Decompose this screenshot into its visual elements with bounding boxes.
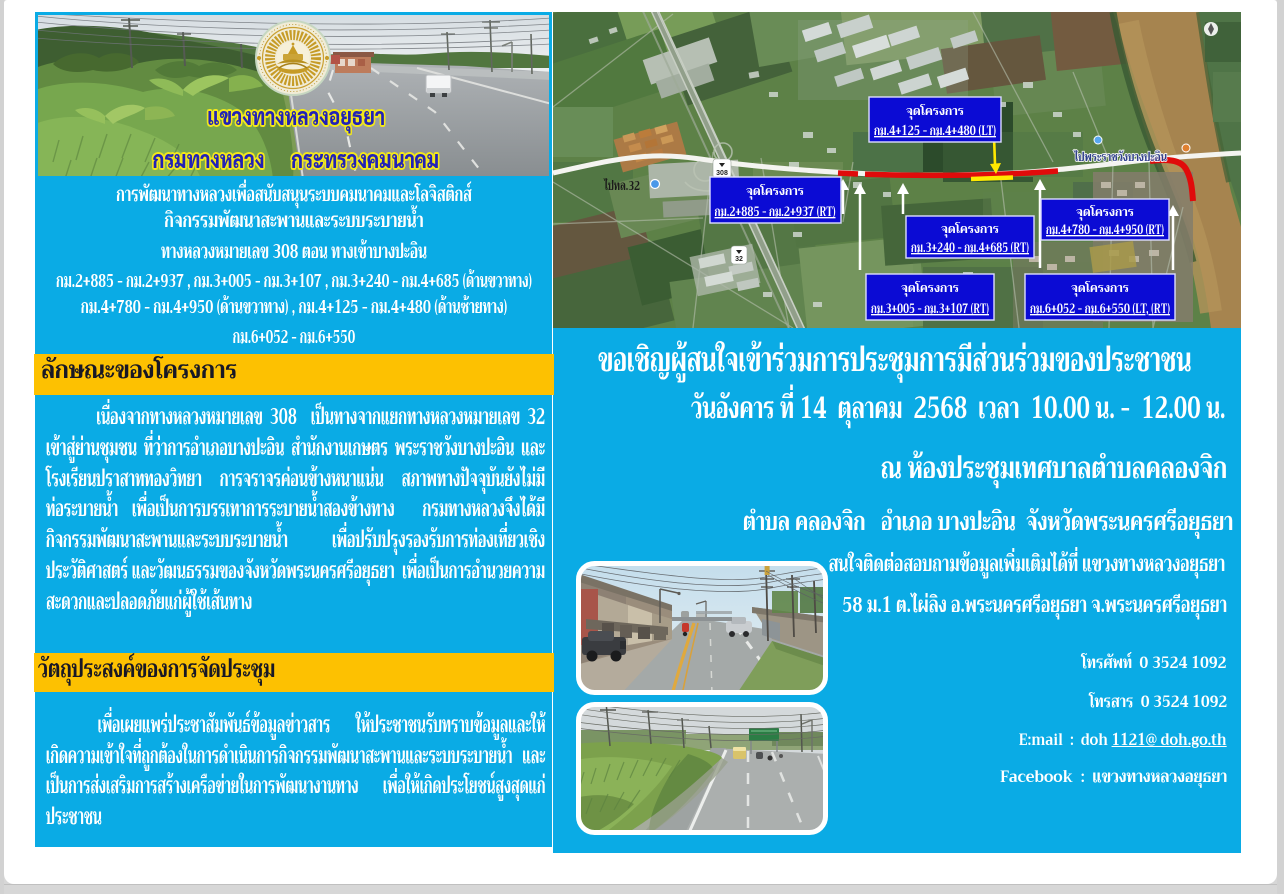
svg-text:ไปพระราชวังบางปะอิน: ไปพระราชวังบางปะอิน (1073, 148, 1167, 168)
svg-text:จุดโครงการ: จุดโครงการ (746, 180, 804, 202)
svg-text:จุดโครงการ: จุดโครงการ (1071, 277, 1129, 299)
svg-text:กม.3+005 - กม.3+107 (RT): กม.3+005 - กม.3+107 (RT) (871, 298, 989, 321)
svg-text:กม.4+780 - กม.4+950 (RT): กม.4+780 - กม.4+950 (RT) (1046, 219, 1164, 242)
svg-text:กม.6+052 - กม.6+550 (LT, (RT): กม.6+052 - กม.6+550 (LT, (RT) (1030, 298, 1170, 321)
svg-text:ไปทล.32: ไปทล.32 (603, 174, 640, 197)
svg-text:กม.2+885 - กม.2+937 (RT): กม.2+885 - กม.2+937 (RT) (715, 201, 836, 224)
svg-text:จุดโครงการ: จุดโครงการ (906, 100, 964, 122)
svg-text:กม.4+125 - กม.4+480 (LT): กม.4+125 - กม.4+480 (LT) (874, 120, 996, 143)
svg-text:32: 32 (735, 256, 743, 263)
svg-text:จุดโครงการ: จุดโครงการ (901, 277, 959, 299)
svg-text:308: 308 (716, 170, 728, 177)
svg-text:กม.3+240 - กม.4+685 (RT): กม.3+240 - กม.4+685 (RT) (911, 237, 1029, 260)
